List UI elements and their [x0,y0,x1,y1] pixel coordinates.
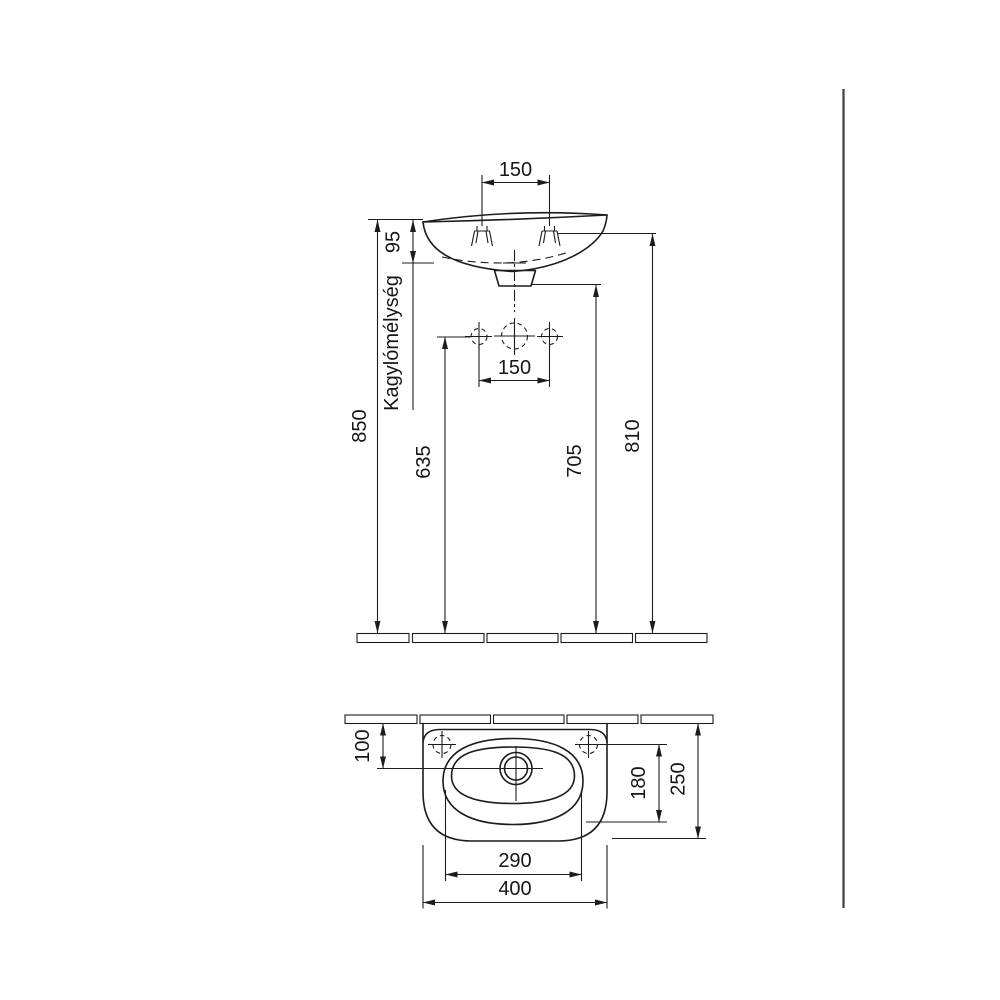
drain-circle [500,746,532,801]
hatch-segment [413,634,485,643]
basin-plan-outline [423,724,607,842]
dim-bracket-height: 810 [557,234,656,634]
fixing-bracket-icon [539,226,560,246]
dim-bowl-depth-value: 95 [383,231,405,253]
dim-fixing-holes-height-label: 635 [413,445,435,478]
dim-fixing-holes-height: 635 [413,337,470,633]
hatch-segment [636,634,708,643]
dim-overall-width-label: 400 [498,878,531,900]
dim-tap-spacing: 150 [482,159,550,226]
dim-bowl-width-label: 290 [498,850,531,872]
fixing-bracket-icon [472,226,493,246]
basin-inner-rim-line [423,730,607,743]
bowl-depth-label: Kagylómélység [381,275,403,411]
bowl-inner-oval [452,747,575,804]
hatch-segment [357,634,409,643]
hatch-segment [567,715,638,724]
front-view: 150 150 850 [349,159,707,643]
dim-tap-to-front-label: 180 [628,766,650,799]
wall-hatch [345,715,713,724]
drain-pipe-hole-icon [494,318,535,355]
technical-drawing-page: 150 150 850 [0,0,1000,1000]
dim-rim-height-label: 850 [349,409,371,442]
tap-hole-icon [428,731,456,758]
bowl-outer-oval [443,739,583,825]
dim-drain-height-label: 705 [564,444,586,477]
hatch-segment [420,715,491,724]
hatch-segment [641,715,713,724]
dim-fixing-hole-spacing-label: 150 [498,357,531,379]
hatch-segment [561,634,633,643]
dim-bowl-depth: 95 Kagylómélység [381,220,434,411]
washbasin-dimension-drawing: 150 150 850 [0,0,1000,1000]
floor-hatch [357,634,707,643]
hatch-segment [345,715,417,724]
hatch-segment [487,634,558,643]
plan-view: 100 180 250 290 400 [345,715,713,909]
bowl-bottom-hidden-line [442,252,569,263]
dim-wall-to-drain-label: 100 [352,729,374,762]
dim-overall-depth-label: 250 [668,762,690,795]
dim-bracket-height-label: 810 [622,419,644,452]
dim-tap-spacing-label: 150 [499,159,532,181]
dim-tap-to-front: 180 [586,745,667,823]
hatch-segment [494,715,565,724]
